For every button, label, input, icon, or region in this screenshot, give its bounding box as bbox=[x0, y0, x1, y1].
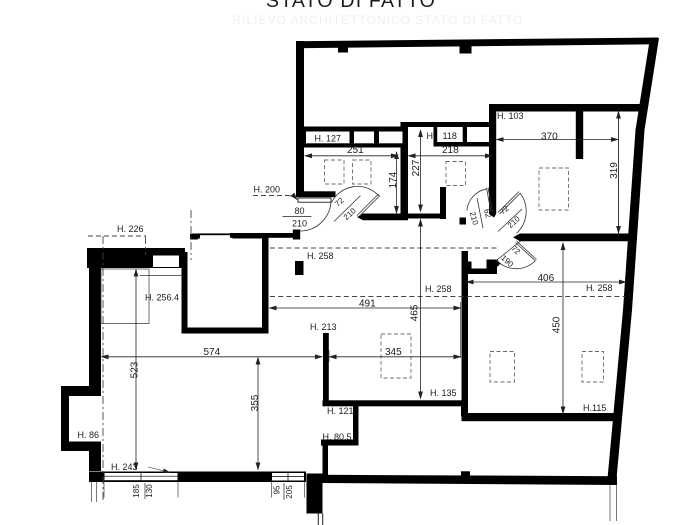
svg-text:370: 370 bbox=[541, 132, 558, 143]
svg-text:574: 574 bbox=[204, 347, 221, 358]
svg-text:450: 450 bbox=[552, 316, 563, 333]
svg-text:491: 491 bbox=[359, 299, 376, 310]
svg-text:H.115: H.115 bbox=[583, 403, 606, 413]
svg-text:H. 258: H. 258 bbox=[425, 284, 452, 294]
svg-text:523: 523 bbox=[130, 361, 141, 378]
svg-text:H. 213: H. 213 bbox=[310, 322, 337, 332]
svg-text:118: 118 bbox=[443, 131, 457, 141]
svg-text:319: 319 bbox=[609, 162, 620, 179]
svg-text:H. 86: H. 86 bbox=[78, 430, 100, 440]
svg-text:STATO DI FATTO: STATO DI FATTO bbox=[266, 0, 436, 12]
svg-text:95: 95 bbox=[273, 485, 282, 494]
svg-text:H. 258: H. 258 bbox=[586, 283, 613, 293]
svg-text:RILIEVO ARCHITETTONICO STATO D: RILIEVO ARCHITETTONICO STATO DI FATTO bbox=[232, 13, 523, 27]
svg-text:227: 227 bbox=[411, 159, 422, 176]
svg-text:185: 185 bbox=[132, 484, 141, 498]
svg-text:210: 210 bbox=[292, 219, 307, 229]
svg-text:218: 218 bbox=[442, 145, 459, 156]
svg-text:H. 226: H. 226 bbox=[117, 224, 144, 234]
svg-text:H. 256.4: H. 256.4 bbox=[145, 293, 179, 303]
svg-text:H. 200: H. 200 bbox=[254, 185, 281, 195]
svg-text:130: 130 bbox=[145, 484, 154, 498]
svg-text:465: 465 bbox=[410, 304, 421, 321]
svg-text:205: 205 bbox=[285, 485, 294, 499]
svg-text:345: 345 bbox=[385, 347, 402, 358]
svg-text:H.: H. bbox=[427, 131, 436, 141]
svg-text:H. 127: H. 127 bbox=[315, 134, 342, 144]
svg-text:406: 406 bbox=[538, 273, 555, 284]
svg-text:355: 355 bbox=[250, 394, 261, 411]
svg-text:H. 135: H. 135 bbox=[430, 388, 457, 398]
svg-text:80: 80 bbox=[295, 206, 305, 216]
svg-text:251: 251 bbox=[347, 145, 364, 156]
svg-text:H. 243: H. 243 bbox=[111, 462, 138, 472]
svg-text:H. 258: H. 258 bbox=[307, 251, 334, 261]
svg-text:H. 80,5: H. 80,5 bbox=[323, 432, 352, 442]
svg-text:174: 174 bbox=[388, 171, 399, 188]
svg-text:H. 103: H. 103 bbox=[497, 111, 524, 121]
svg-text:H. 121: H. 121 bbox=[327, 406, 354, 416]
